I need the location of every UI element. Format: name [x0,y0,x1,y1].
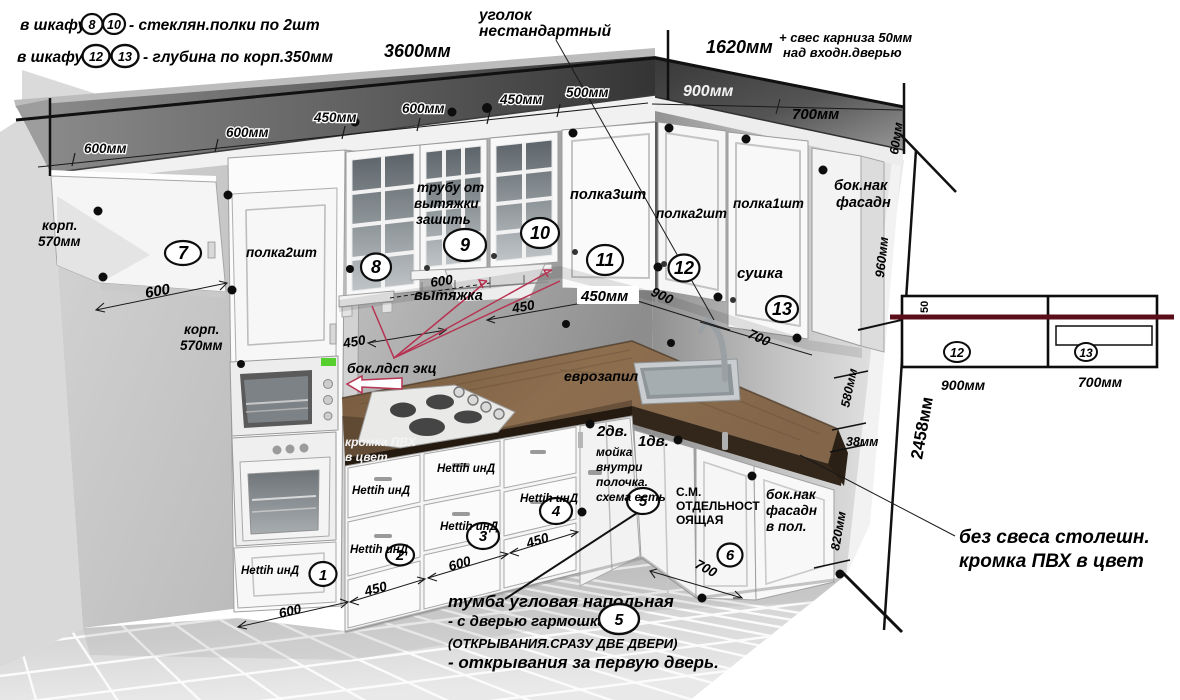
svg-text:600мм: 600мм [84,141,127,156]
svg-text:600мм: 600мм [226,125,269,140]
svg-text:трубу от: трубу от [417,180,484,195]
svg-text:полка3шт: полка3шт [570,187,646,203]
svg-text:уголок: уголок [478,7,533,24]
svg-text:8: 8 [371,257,381,277]
svg-text:13: 13 [772,299,792,319]
svg-text:10: 10 [530,223,550,243]
svg-text:кромка ПВХ в цвет: кромка ПВХ в цвет [959,551,1144,572]
svg-text:450мм: 450мм [580,288,628,305]
svg-text:12: 12 [674,258,694,278]
svg-text:50: 50 [919,301,931,313]
svg-text:сушка: сушка [737,265,783,282]
svg-text:тумба угловая напольная: тумба угловая напольная [448,592,674,611]
svg-text:700мм: 700мм [792,106,839,123]
svg-text:Hettih инД: Hettih инД [352,485,410,497]
svg-text:в пол.: в пол. [766,519,807,534]
svg-text:бок.нак: бок.нак [766,487,817,502]
svg-text:кромка ПВХ: кромка ПВХ [345,435,417,449]
svg-text:нестандартный: нестандартный [479,23,612,40]
svg-text:900мм: 900мм [683,83,734,100]
svg-text:1620мм: 1620мм [706,37,773,57]
svg-text:С.М.: С.М. [676,485,701,499]
svg-text:бок.нак: бок.нак [834,178,888,194]
svg-text:полка2шт: полка2шт [246,245,317,260]
svg-text:без свеса столешн.: без свеса столешн. [959,527,1150,548]
svg-text:7: 7 [178,243,189,263]
svg-text:полочка.: полочка. [596,475,648,489]
svg-text:12: 12 [89,50,103,64]
svg-text:- с дверью гармошка: - с дверью гармошка [448,613,606,630]
svg-text:Hettih инД: Hettih инД [440,521,498,533]
svg-text:еврозапил: еврозапил [564,368,638,384]
svg-text:450мм: 450мм [499,92,543,107]
svg-text:вытяжка: вытяжка [414,288,483,304]
svg-text:мойка: мойка [596,445,633,459]
svg-text:бок.лдсп экц: бок.лдсп экц [347,360,437,376]
svg-text:корп.: корп. [184,322,219,337]
svg-text:Hettih инД: Hettih инД [437,463,495,475]
svg-text:6: 6 [726,547,735,564]
svg-text:- открывания за первую дверь.: - открывания за первую дверь. [448,653,719,672]
svg-text:Hettih инД: Hettih инД [241,565,299,577]
svg-text:13: 13 [118,50,132,64]
svg-text:450мм: 450мм [313,110,357,125]
svg-text:2дв.: 2дв. [596,423,628,440]
svg-text:9: 9 [460,235,470,255]
svg-text:11: 11 [596,250,615,270]
svg-text:13: 13 [1079,346,1093,360]
svg-text:12: 12 [950,346,964,360]
svg-text:3600мм: 3600мм [384,41,451,61]
svg-text:- стеклян.полки по 2шт: - стеклян.полки по 2шт [129,17,320,34]
svg-text:Hettih инД: Hettih инД [520,493,578,505]
svg-text:4: 4 [551,503,561,520]
svg-text:ОЯЩАЯ: ОЯЩАЯ [676,513,723,527]
svg-text:полка2шт: полка2шт [656,206,727,221]
svg-text:1: 1 [319,567,327,584]
svg-text:внутри: внутри [596,460,643,474]
svg-text:570мм: 570мм [38,234,81,249]
svg-text:фасадн: фасадн [836,195,891,211]
svg-text:(ОТКРЫВАНИЯ.СРАЗУ ДВЕ ДВЕРИ): (ОТКРЫВАНИЯ.СРАЗУ ДВЕ ДВЕРИ) [448,636,677,651]
svg-text:в шкафу: в шкафу [20,17,87,34]
svg-text:корп.: корп. [42,218,77,233]
svg-text:Hettih инД: Hettih инД [350,544,408,556]
svg-text:900мм: 900мм [941,377,986,393]
svg-text:ОТДЕЛЬНОСТ: ОТДЕЛЬНОСТ [676,499,760,513]
svg-text:1дв.: 1дв. [638,433,669,450]
svg-text:полка1шт: полка1шт [733,196,804,211]
svg-text:5: 5 [615,612,625,629]
svg-text:- глубина по корп.350мм: - глубина по корп.350мм [143,49,333,66]
svg-text:вытяжки: вытяжки [414,196,479,211]
svg-text:в цвет: в цвет [345,450,388,464]
svg-text:+ свес карниза 50мм: + свес карниза 50мм [779,30,912,45]
svg-text:570мм: 570мм [180,338,223,353]
svg-text:600мм: 600мм [402,101,445,116]
svg-text:10: 10 [107,18,121,32]
svg-text:38мм: 38мм [846,435,878,449]
svg-text:в шкафу: в шкафу [17,49,84,66]
svg-text:8: 8 [89,18,96,32]
svg-text:зашить: зашить [416,212,471,227]
svg-text:500мм: 500мм [566,85,609,100]
svg-text:над входн.дверью: над входн.дверью [783,45,902,60]
svg-text:схема есть: схема есть [596,490,666,504]
svg-text:700мм: 700мм [1078,374,1123,390]
svg-text:фасадн: фасадн [766,503,817,518]
